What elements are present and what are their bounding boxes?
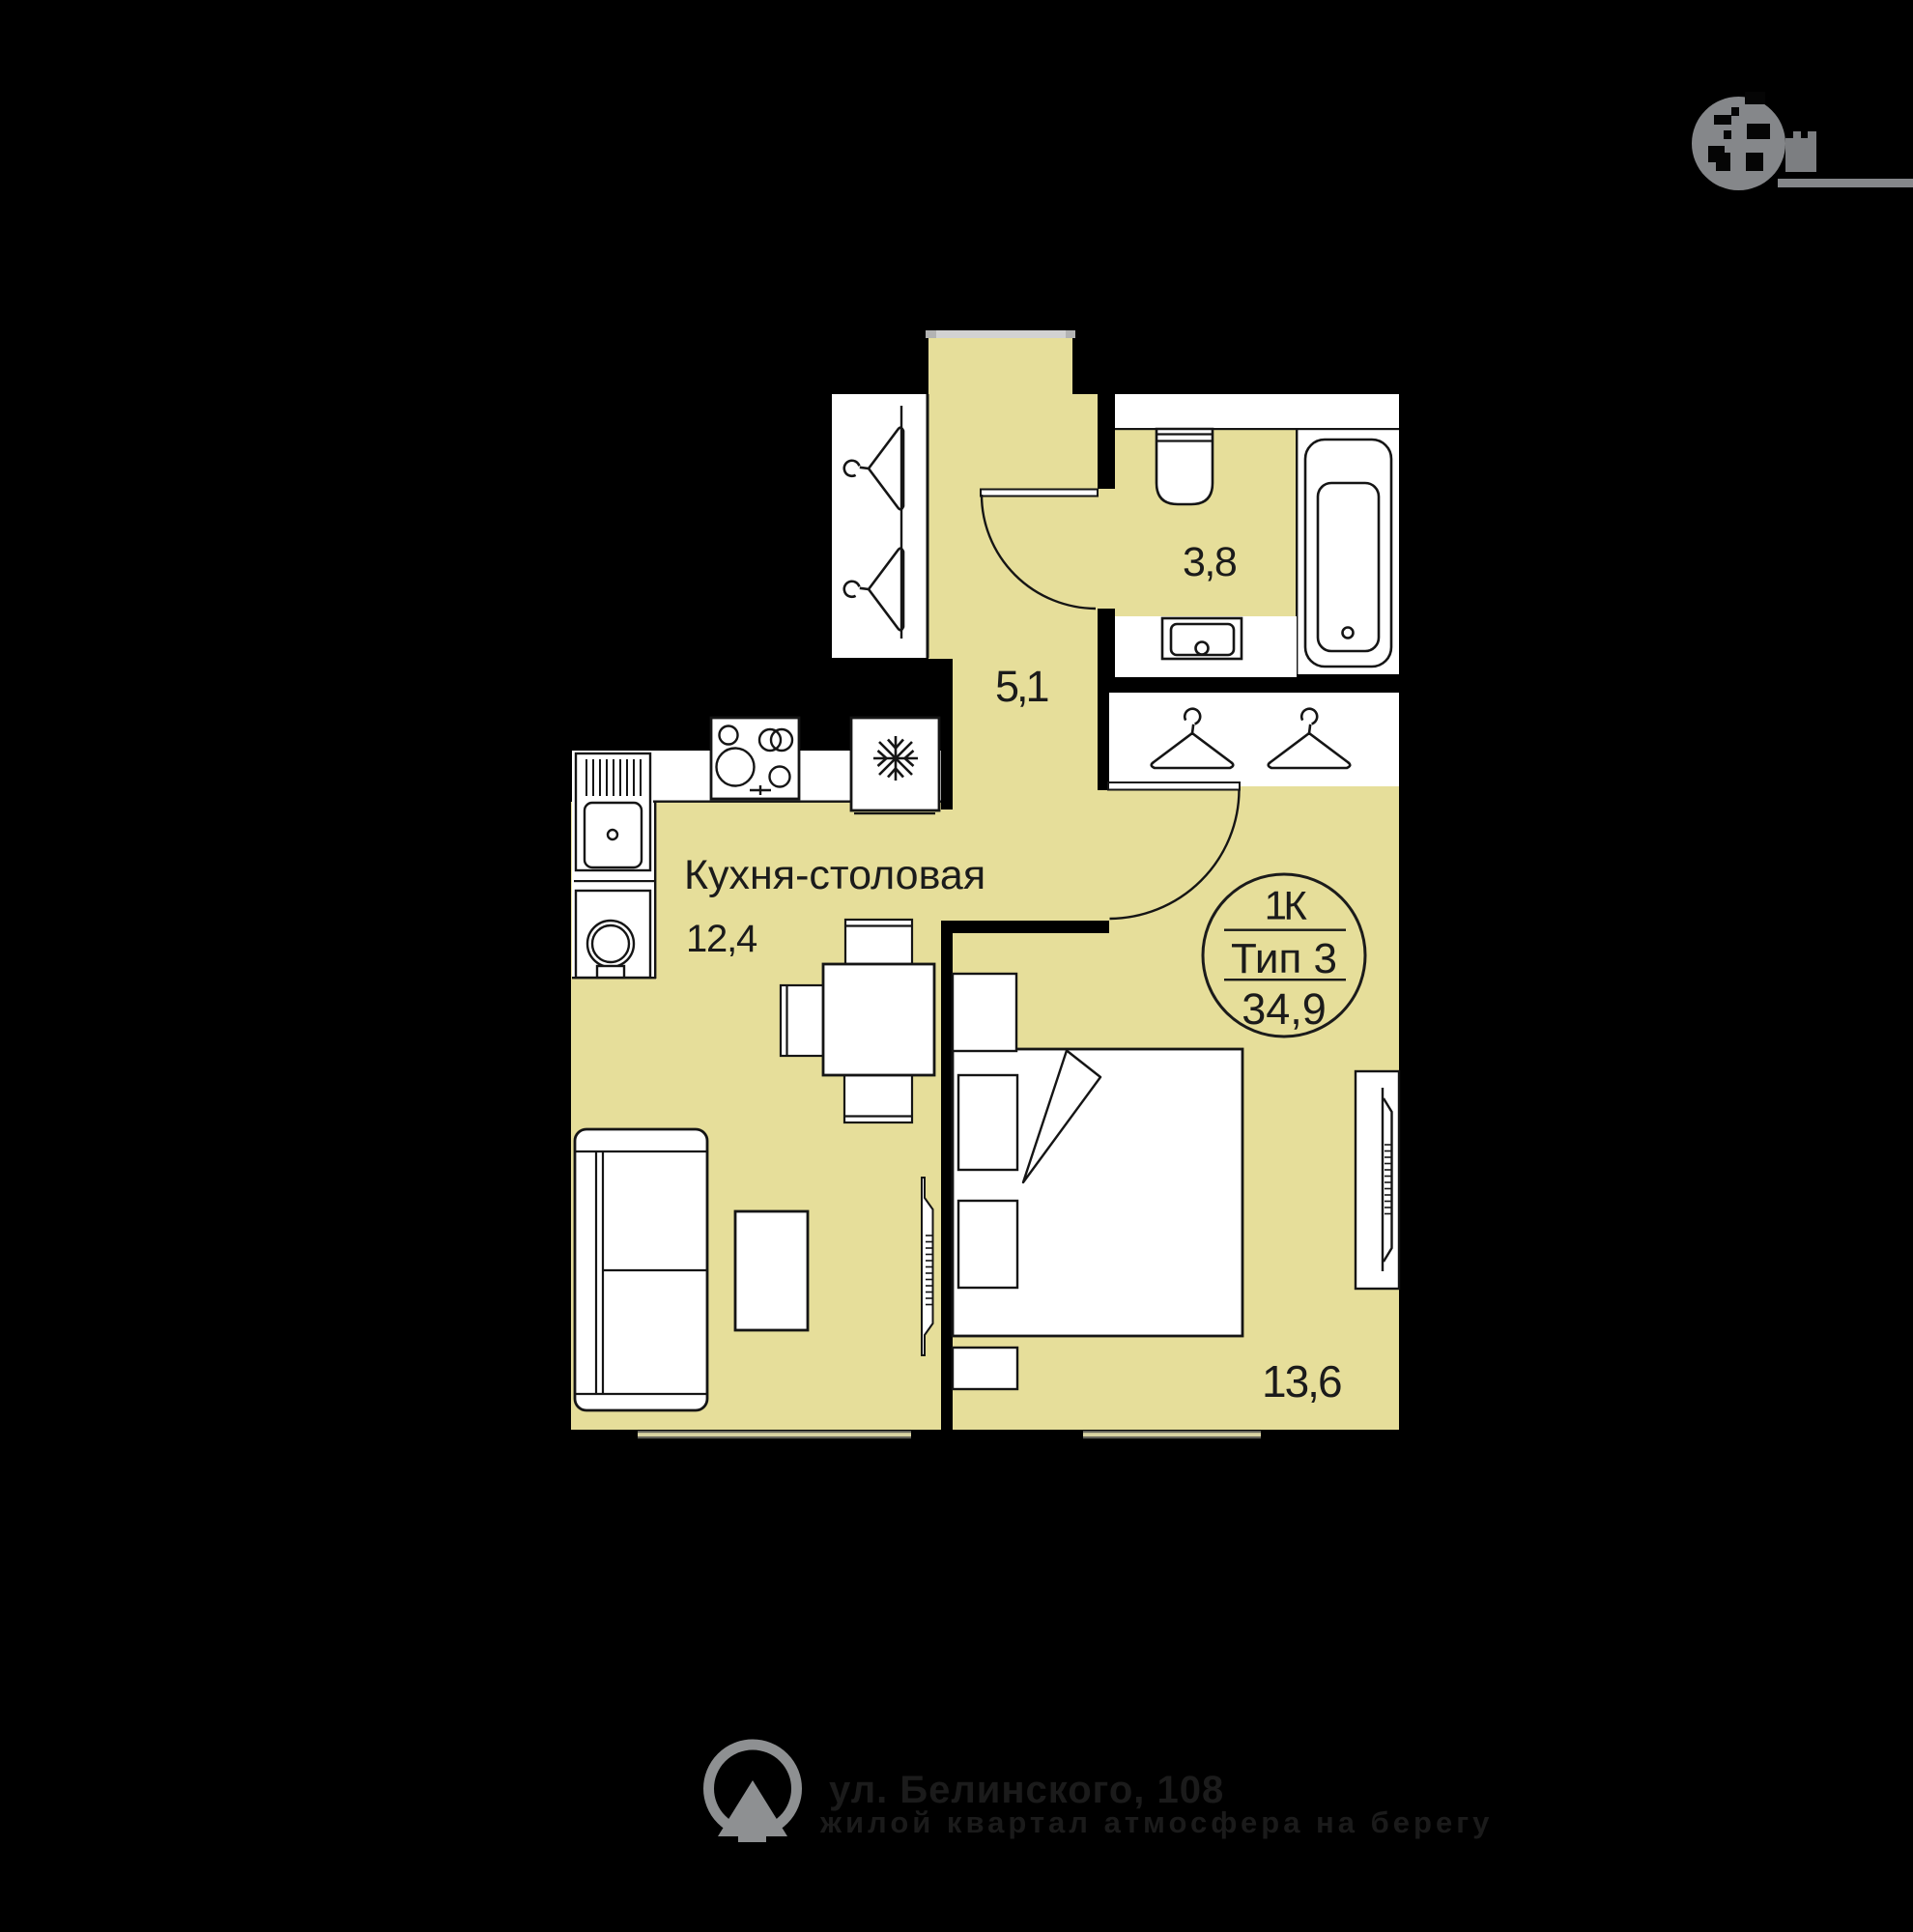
svg-text:34,9: 34,9 bbox=[1242, 984, 1327, 1034]
svg-text:Кухня-столовая: Кухня-столовая bbox=[684, 852, 985, 898]
svg-text:13,6: 13,6 bbox=[1262, 1356, 1341, 1406]
svg-text:5,1: 5,1 bbox=[995, 662, 1048, 711]
svg-text:12,4: 12,4 bbox=[686, 918, 757, 960]
svg-text:жилой квартал атмосфера на бер: жилой квартал атмосфера на берегу bbox=[819, 1805, 1493, 1839]
svg-text:Тип 3: Тип 3 bbox=[1231, 935, 1337, 982]
svg-text:3,8: 3,8 bbox=[1183, 539, 1237, 585]
svg-text:1К: 1К bbox=[1265, 883, 1308, 928]
